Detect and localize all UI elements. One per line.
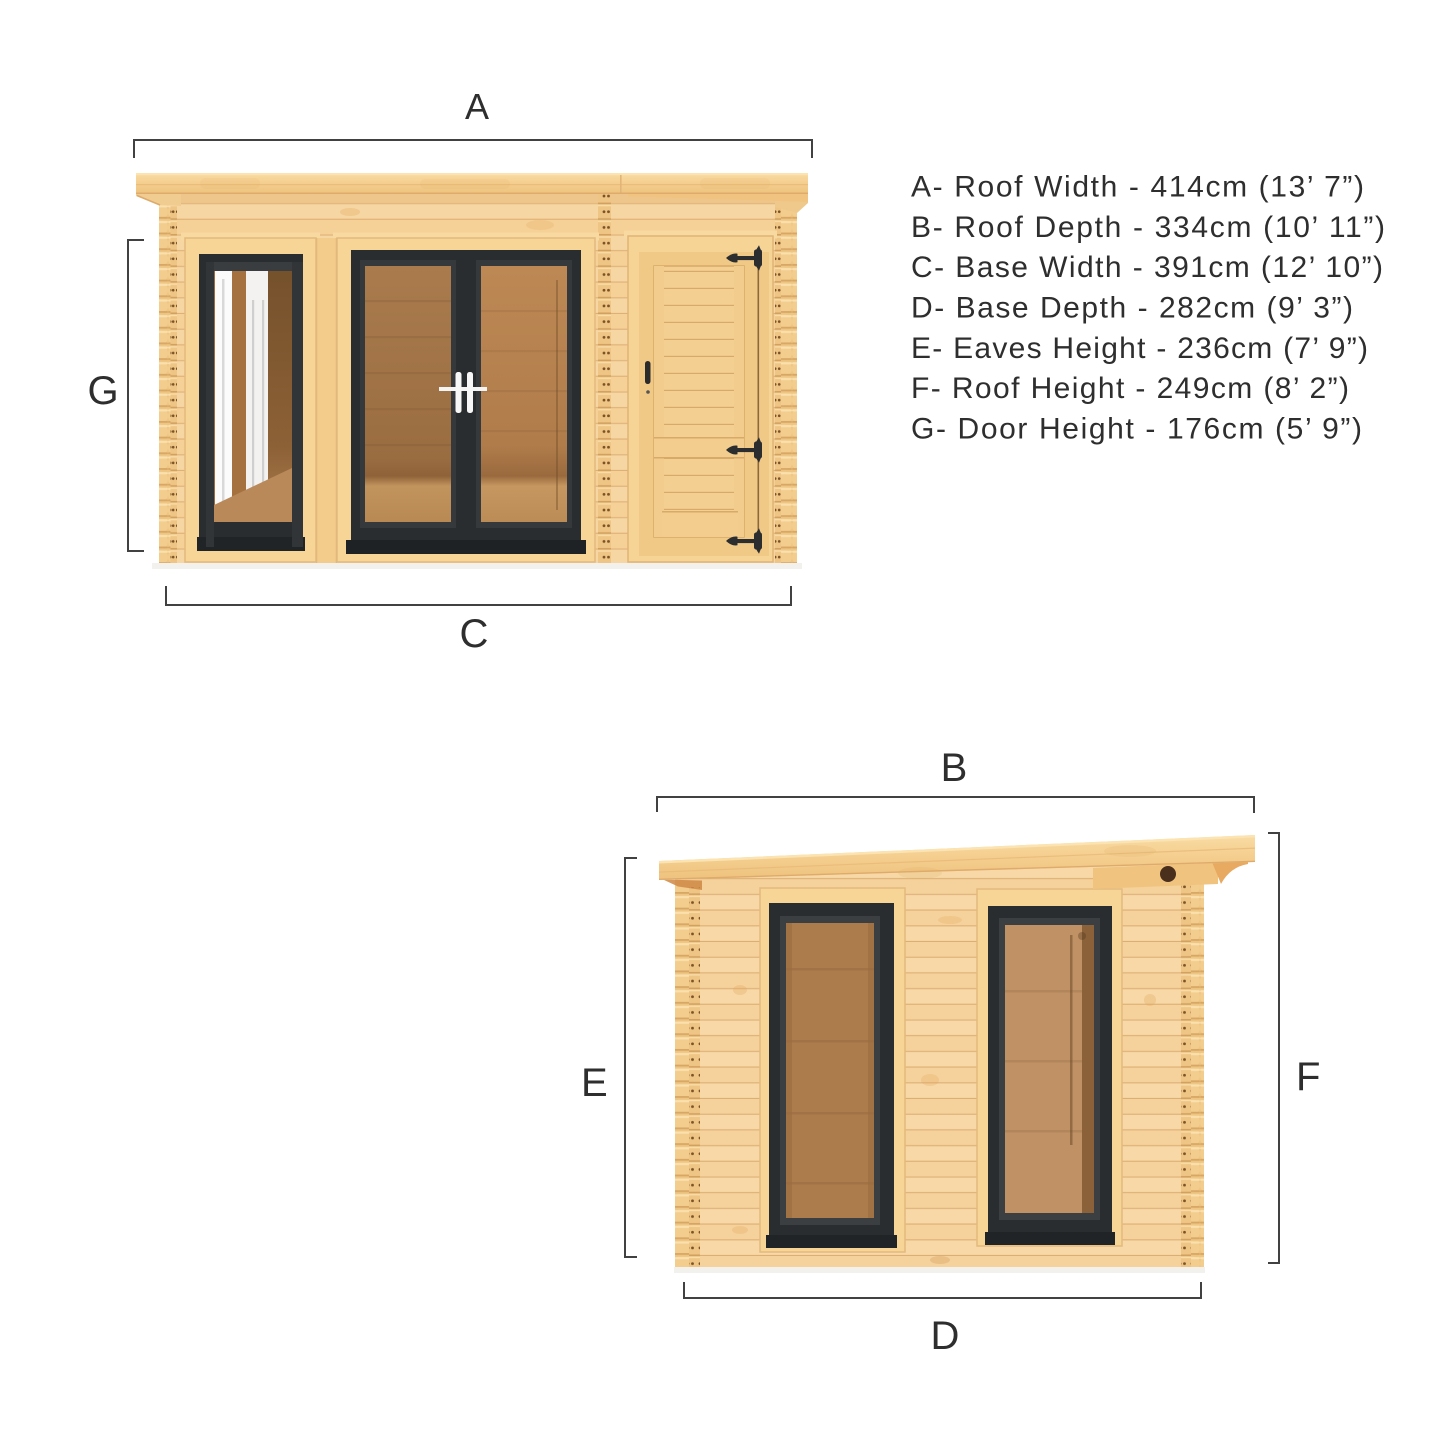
svg-text:F: F <box>1296 1055 1320 1099</box>
svg-text:F- Roof Height - 249cm (8’ 2”): F- Roof Height - 249cm (8’ 2”) <box>911 372 1349 405</box>
svg-text:D- Base Depth - 282cm (9’ 3”): D- Base Depth - 282cm (9’ 3”) <box>911 292 1353 325</box>
svg-text:A- Roof Width - 414cm (13’ 7”): A- Roof Width - 414cm (13’ 7”) <box>911 171 1364 204</box>
svg-text:B: B <box>941 746 968 790</box>
svg-text:G: G <box>87 369 118 413</box>
svg-text:D: D <box>931 1314 960 1358</box>
svg-text:A: A <box>465 86 489 127</box>
svg-text:C: C <box>460 612 489 656</box>
svg-text:G- Door Height - 176cm (5’ 9”): G- Door Height - 176cm (5’ 9”) <box>911 413 1362 446</box>
svg-text:E: E <box>581 1061 608 1105</box>
svg-text:C- Base Width - 391cm (12’ 10”: C- Base Width - 391cm (12’ 10”) <box>911 251 1383 284</box>
svg-text:B- Roof Depth - 334cm (10’ 11”: B- Roof Depth - 334cm (10’ 11”) <box>911 211 1385 244</box>
svg-text:E- Eaves Height - 236cm (7’ 9”: E- Eaves Height - 236cm (7’ 9”) <box>911 332 1368 365</box>
